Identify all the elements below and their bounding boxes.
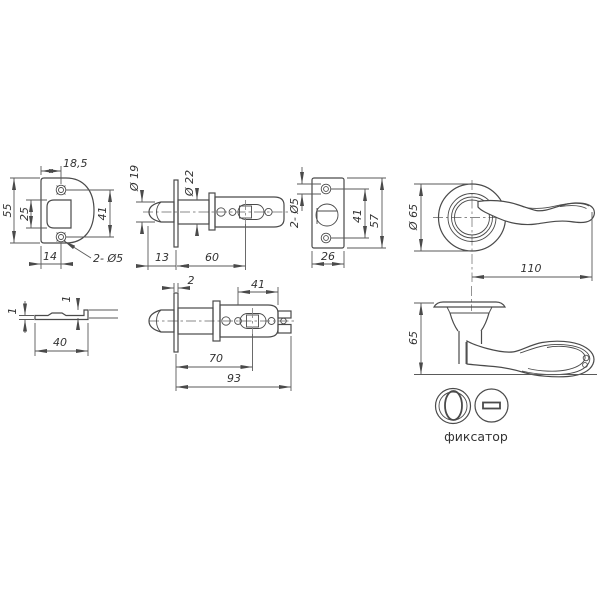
- view-handle-front: Ø 65 110: [407, 180, 594, 282]
- dim-plate-width: 40: [53, 336, 67, 349]
- dim-faceplate-hole-span: 41: [351, 209, 364, 223]
- dim-strike-bottom-offset: 14: [43, 250, 57, 263]
- dim-handle-length: 110: [521, 262, 542, 275]
- dim-plate-thickness: 1: [6, 308, 19, 315]
- dim-backset-60: 60: [205, 251, 219, 264]
- dim-strike-opening-height: 25: [18, 207, 31, 221]
- emergency-release-face: [475, 389, 508, 422]
- dim-faceplate-width: 26: [321, 250, 335, 263]
- dim-faceplate-height: 57: [368, 214, 381, 228]
- dim-rose-diameter: Ø 65: [407, 204, 420, 231]
- dim-total-length: 93: [227, 372, 241, 385]
- view-faceplate-front: 2- Ø5 41 57 26: [288, 167, 386, 268]
- view-latch-backset-70: 2 41 70 93: [149, 274, 296, 391]
- dim-handle-height: 65: [407, 331, 420, 345]
- dim-bolt-length: 13: [155, 251, 169, 264]
- screw-hole-bottom: [56, 232, 66, 242]
- dim-backset-70: 70: [209, 352, 223, 365]
- spindle-fork: [278, 311, 291, 333]
- view-latch-backset-60: Ø 19 Ø 22 13 60: [128, 165, 292, 270]
- dim-faceplate-thickness: 2: [188, 274, 195, 287]
- dim-lip-height: 1: [60, 296, 73, 303]
- dim-faceplate-holes-note: 2- Ø5: [288, 198, 301, 228]
- view-strike-plate-front: 18,5 55 25 41 14 2- Ø5: [1, 157, 123, 269]
- dim-strike-holes-note: 2- Ø5: [93, 252, 123, 265]
- screw-hole-top: [56, 185, 66, 195]
- dim-strike-hole-span: 41: [96, 207, 109, 221]
- turn-knob-face: [436, 389, 471, 424]
- dim-spindle-span: 41: [251, 278, 265, 291]
- view-strike-plate-side: 1 1 40: [6, 296, 118, 357]
- dim-tube-diameter: Ø 22: [183, 170, 196, 197]
- faceplate-hole-top: [321, 184, 331, 194]
- latch-bolt-face: [316, 204, 338, 226]
- lockset-dimension-drawing: 18,5 55 25 41 14 2- Ø5: [0, 0, 600, 600]
- technical-drawing-sheet: 18,5 55 25 41 14 2- Ø5: [0, 0, 600, 600]
- dim-strike-top-width: 18,5: [63, 157, 88, 170]
- faceplate-hole-bottom: [321, 233, 331, 243]
- dim-strike-height: 55: [1, 204, 14, 218]
- dim-bolt-diameter: Ø 19: [128, 165, 141, 192]
- view-handle-side: 65 фиксатор: [407, 286, 597, 444]
- turn-knob-label: фиксатор: [444, 429, 508, 444]
